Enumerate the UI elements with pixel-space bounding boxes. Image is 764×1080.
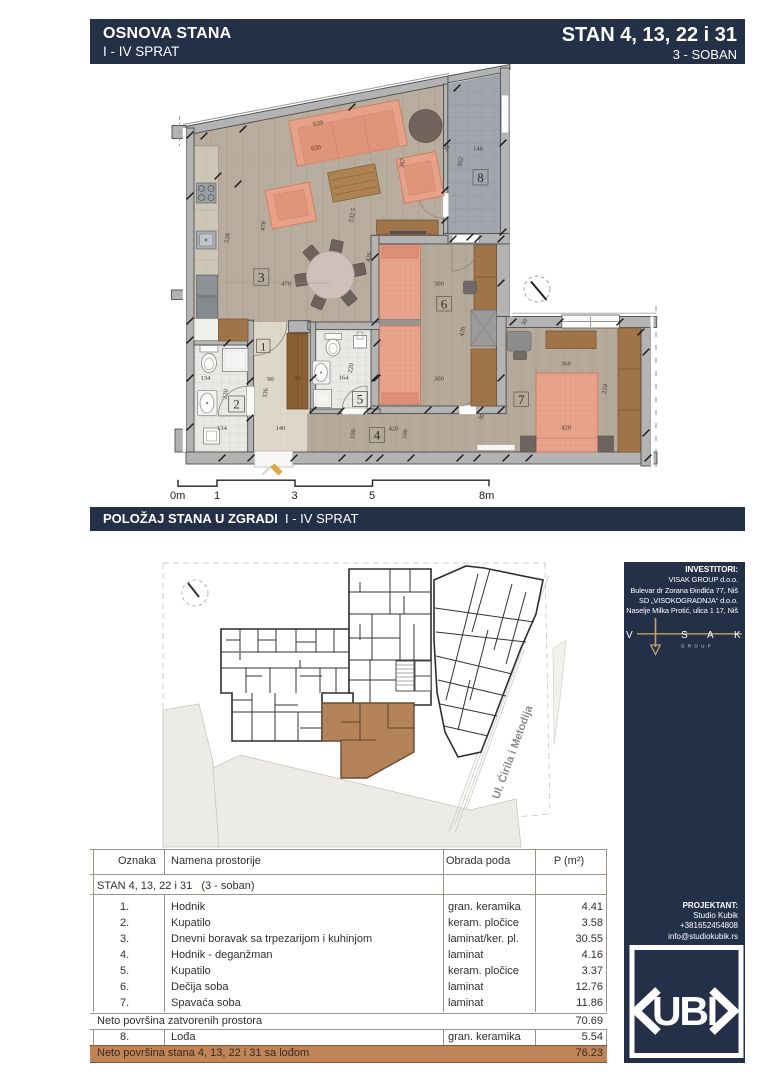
svg-text:UBI: UBI bbox=[652, 988, 716, 1034]
svg-text:V: V bbox=[626, 630, 633, 641]
svg-text:A: A bbox=[707, 630, 714, 641]
svg-text:S: S bbox=[681, 630, 688, 641]
svg-text:K: K bbox=[734, 630, 741, 641]
svg-text:GROUP: GROUP bbox=[681, 644, 714, 649]
